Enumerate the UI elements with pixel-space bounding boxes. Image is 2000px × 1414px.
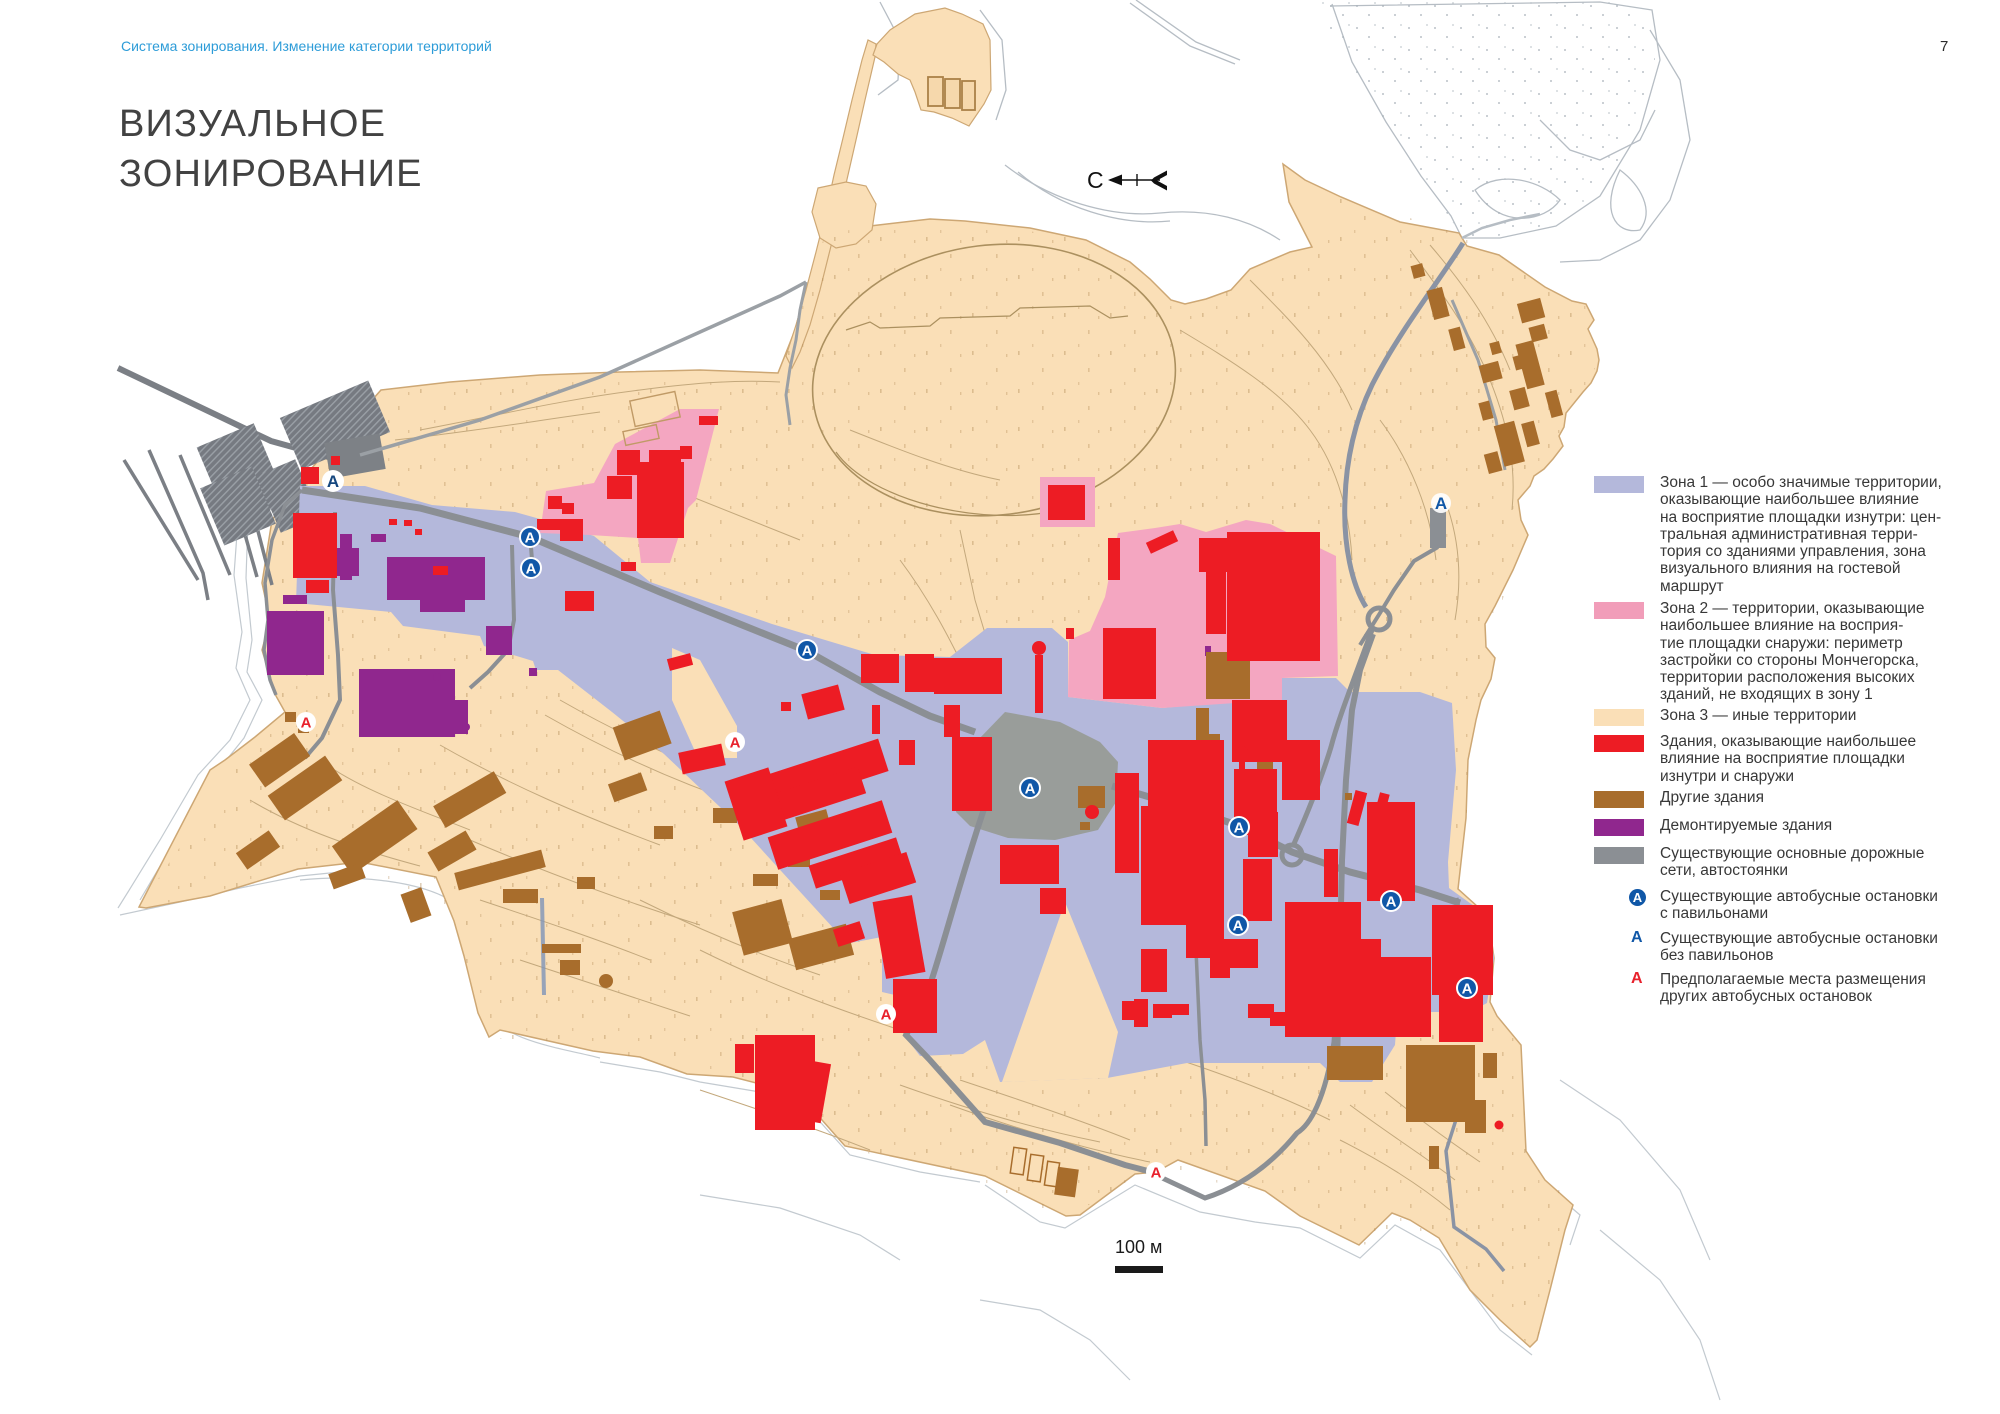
svg-text:А: А [1151,1165,1162,1182]
svg-text:А: А [1234,820,1245,837]
svg-text:А: А [730,735,741,752]
svg-text:100 м: 100 м [1115,1237,1162,1257]
svg-text:А: А [881,1007,892,1024]
svg-text:А: А [327,472,339,491]
svg-text:А: А [1025,781,1036,798]
svg-text:А: А [1386,894,1397,911]
svg-text:А: А [1233,918,1244,935]
svg-text:А: А [1462,981,1473,998]
svg-text:А: А [525,530,536,547]
svg-text:А: А [301,715,312,732]
svg-text:А: А [802,643,813,660]
svg-text:А: А [1435,494,1447,513]
svg-text:А: А [526,561,537,578]
svg-text:С: С [1087,167,1104,193]
